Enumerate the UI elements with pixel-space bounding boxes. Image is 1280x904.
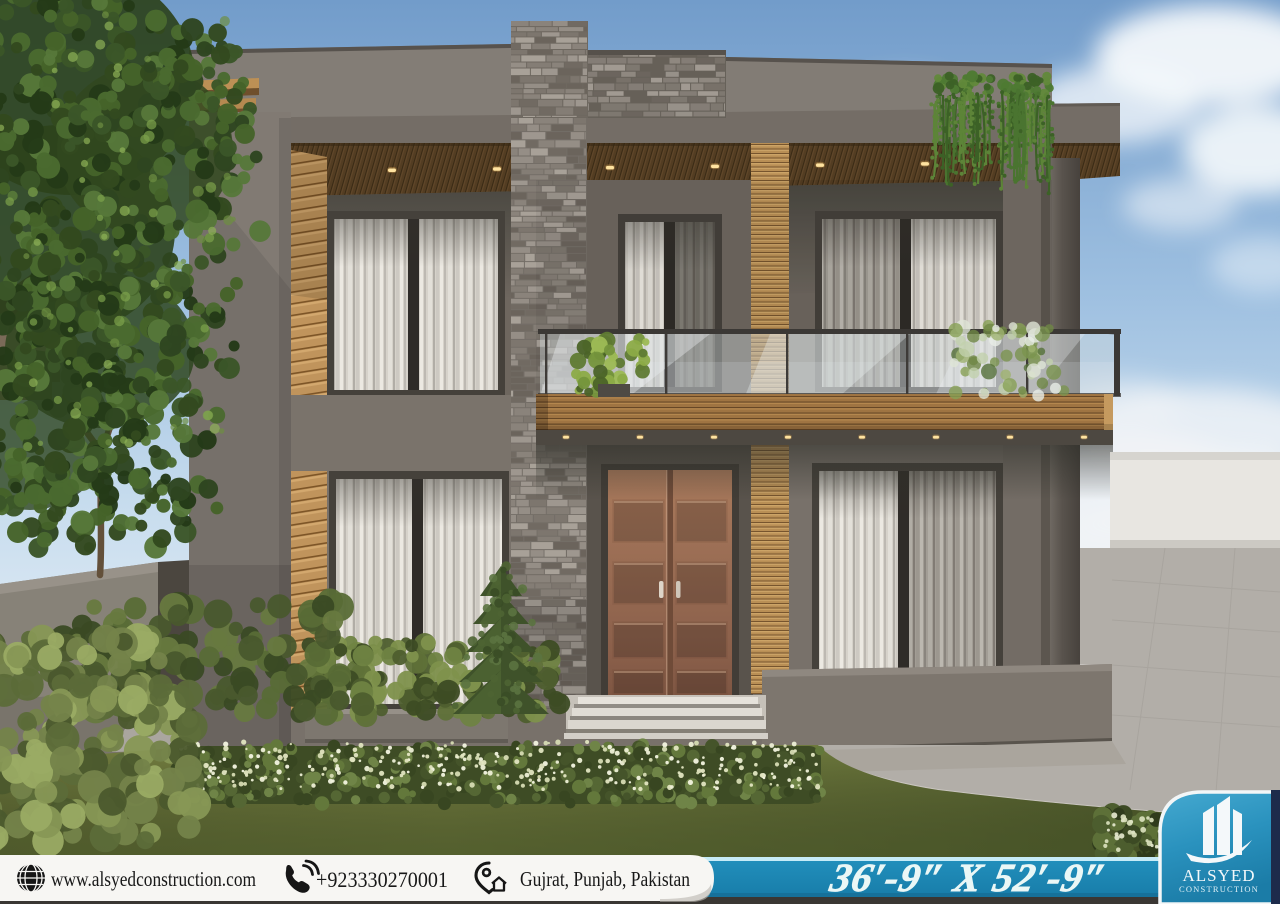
- svg-text:ALSYED: ALSYED: [1182, 866, 1255, 885]
- svg-text:36′-9″ X 52′-9″: 36′-9″ X 52′-9″: [826, 855, 1111, 900]
- svg-text:+923330270001: +923330270001: [316, 867, 448, 892]
- svg-text:CONSTRUCTION: CONSTRUCTION: [1179, 884, 1259, 894]
- svg-text:www.alsyedconstruction.com: www.alsyedconstruction.com: [51, 867, 256, 891]
- svg-text:Gujrat, Punjab, Pakistan: Gujrat, Punjab, Pakistan: [520, 867, 690, 891]
